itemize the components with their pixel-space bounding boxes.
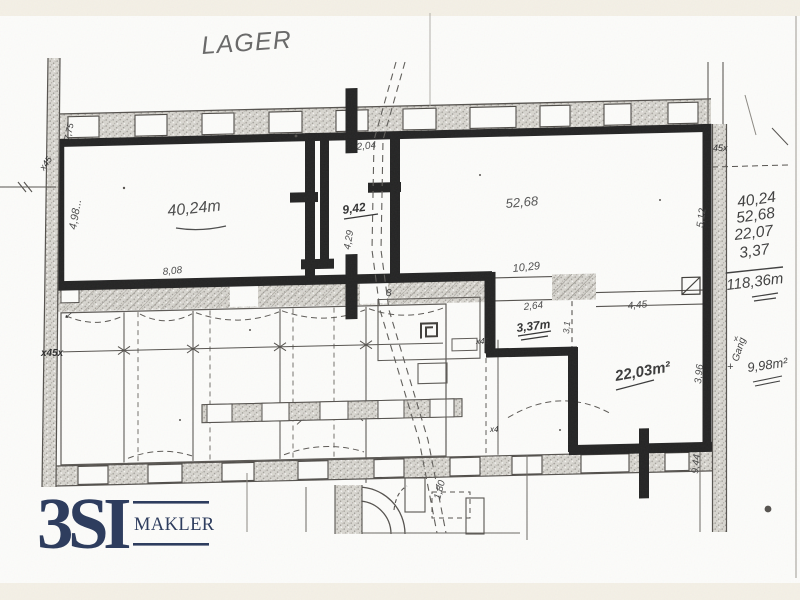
svg-text:3SI: 3SI xyxy=(37,483,129,564)
svg-text:MAKLER: MAKLER xyxy=(134,515,215,535)
